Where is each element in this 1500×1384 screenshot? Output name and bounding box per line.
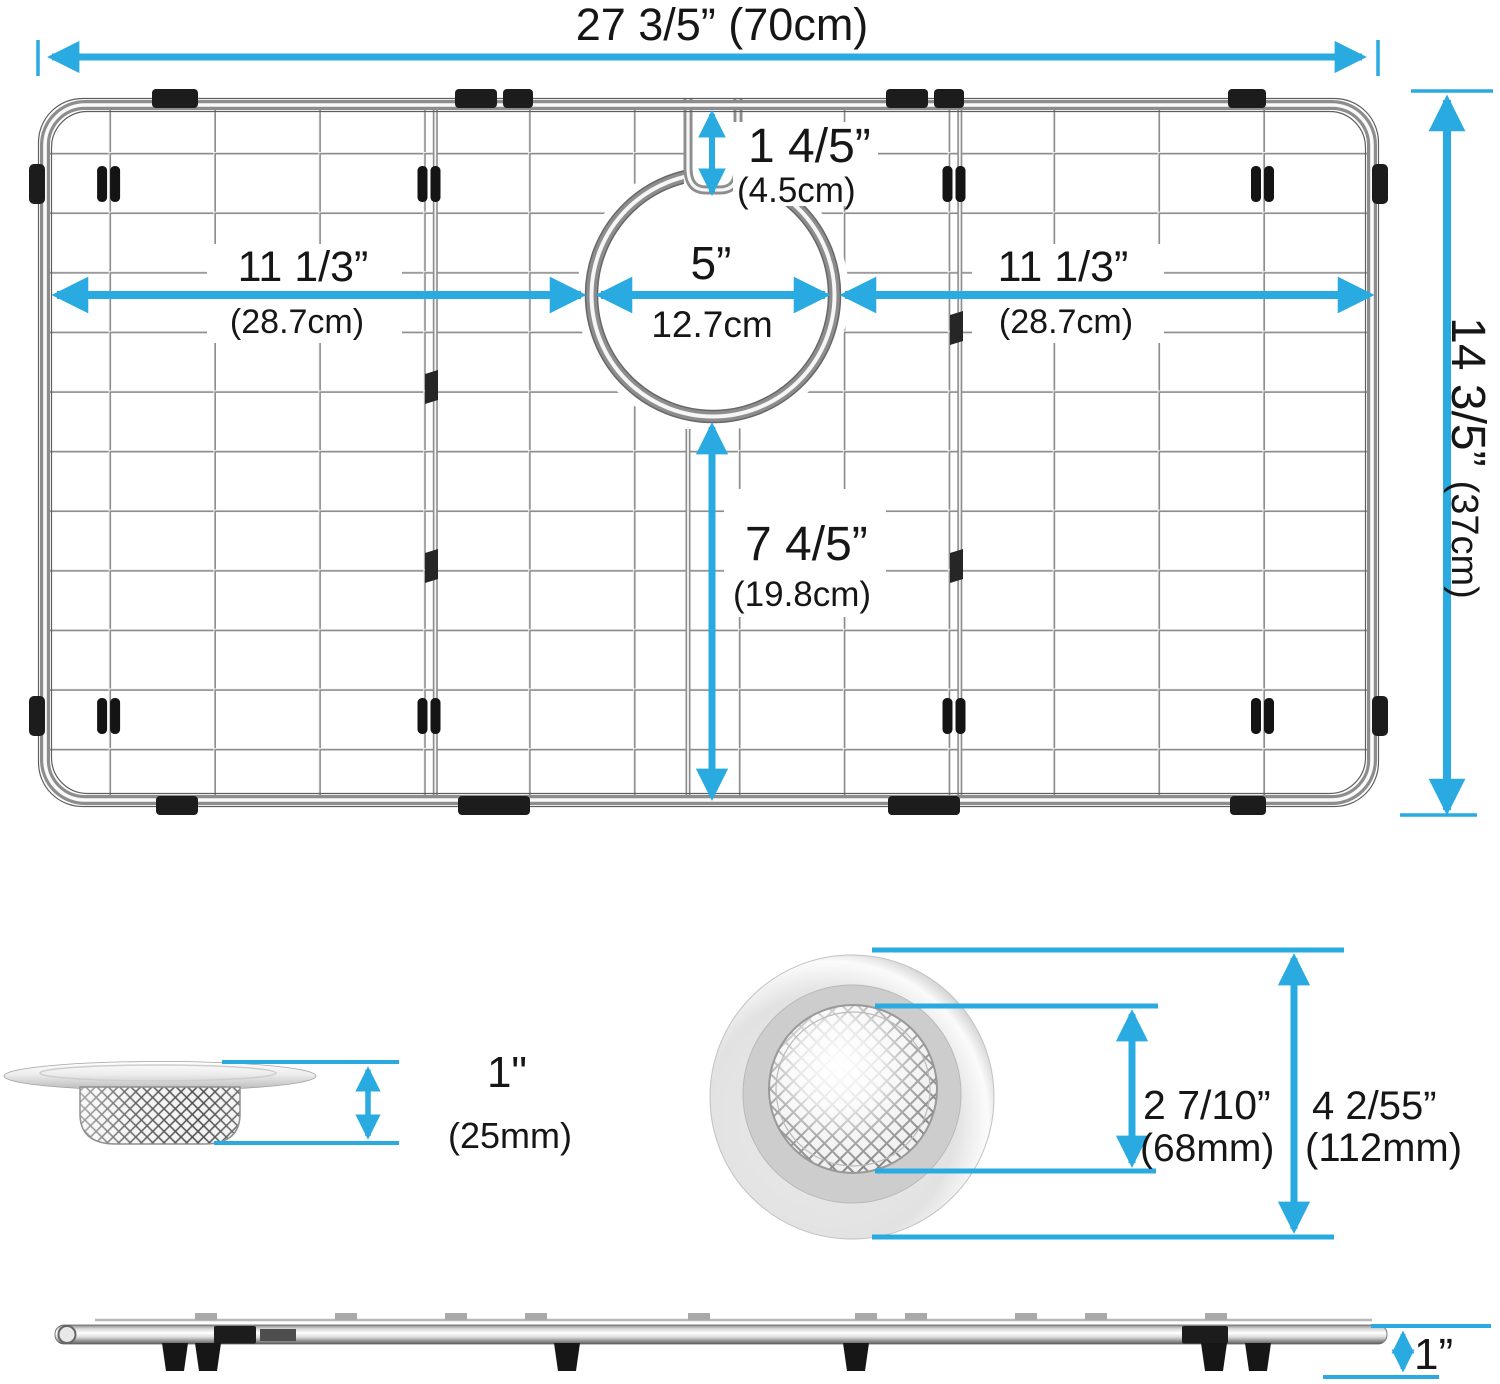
left-span-inch-label: 11 1/3” [238,243,369,291]
product-dimension-diagram: 27 3/5” (70cm) 1 4/5” (4.5cm) 11 1/3” (2… [0,0,1500,1384]
bumper-clip [1228,89,1266,108]
rail-clip-gray [260,1329,296,1341]
bumper-clip [455,89,497,108]
rubber-feet-side [162,1343,1271,1371]
bumper-clip [888,796,960,815]
right-span-inch-label: 11 1/3” [998,243,1129,291]
side-bumper [1372,164,1388,204]
bumper-clip [503,89,533,108]
rim-diameter-mm-label: (112mm) [1305,1126,1462,1170]
strainer-height-mm-label: (25mm) [448,1115,572,1156]
side-bumper [29,164,45,204]
mesh-diameter-mm-label: (68mm) [1140,1127,1274,1170]
grid-thickness-inch-label: 1” [1414,1330,1453,1379]
notch-inch-label: 1 4/5” [748,120,871,173]
drain-to-edge-inch-label: 7 4/5” [745,518,868,571]
overall-height-label: 14 3/5”(37cm) [1441,317,1494,599]
bumper-clip [886,89,928,108]
mesh-diameter-inch-label: 2 7/10” [1143,1082,1271,1128]
strainer-side-view: 1" (25mm) [4,1048,572,1156]
drain-inch-label: 5” [691,237,732,289]
drain-to-edge-cm-label: (19.8cm) [733,575,871,614]
bumper-clip [458,796,530,815]
rail-clip [1182,1326,1228,1344]
strainer-top-view: 2 7/10” (68mm) 4 2/55” (112mm) [710,950,1462,1239]
overall-width-label: 27 3/5” (70cm) [576,0,869,50]
bumper-clip [152,89,198,108]
strainer-basket-side [80,1087,240,1144]
bumper-clip [934,89,964,108]
bumper-clip [156,796,198,815]
left-span-cm-label: (28.7cm) [230,303,364,341]
sink-grid-side-view: 1” [55,1313,1491,1379]
strainer-mesh-dome [769,1005,937,1173]
bumper-clip [1230,796,1266,815]
rail-clip [214,1326,256,1344]
side-bumper [29,696,45,736]
right-span-cm-label: (28.7cm) [999,303,1133,341]
side-bumper [1372,696,1388,736]
diagram-canvas: 27 3/5” (70cm) 1 4/5” (4.5cm) 11 1/3” (2… [0,0,1500,1384]
overall-height-cm: (37cm) [1443,481,1485,599]
notch-cm-label: (4.5cm) [737,171,856,210]
strainer-height-inch-label: 1" [487,1048,527,1097]
overall-height-inch: 14 3/5” [1441,317,1494,466]
rail-end-loop [59,1326,76,1343]
rim-diameter-inch-label: 4 2/55” [1312,1084,1437,1128]
drain-cm-label: 12.7cm [651,304,772,345]
